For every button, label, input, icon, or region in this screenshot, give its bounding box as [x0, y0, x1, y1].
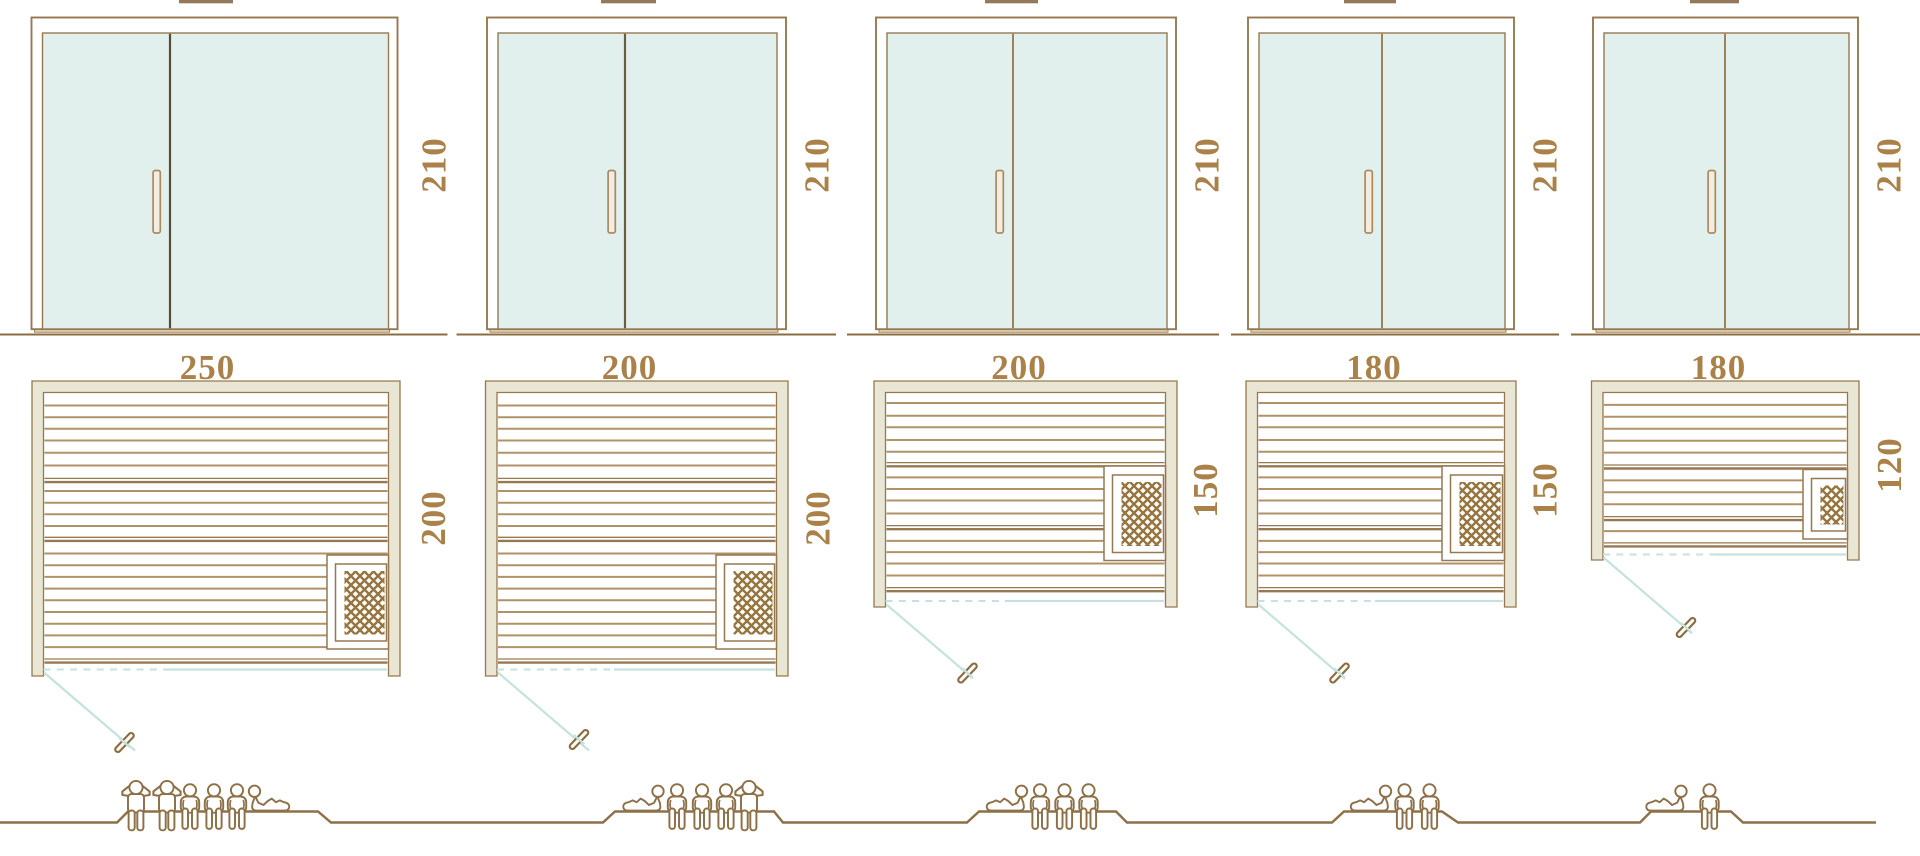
svg-text:150: 150 — [1526, 462, 1565, 518]
svg-text:150: 150 — [1186, 462, 1225, 518]
svg-text:210: 210 — [1526, 137, 1565, 193]
svg-text:210: 210 — [1188, 137, 1227, 193]
svg-text:120: 120 — [1870, 437, 1909, 493]
svg-text:200: 200 — [799, 490, 838, 546]
svg-text:200: 200 — [414, 490, 453, 546]
svg-text:210: 210 — [798, 137, 837, 193]
svg-text:210: 210 — [415, 137, 454, 193]
svg-text:210: 210 — [1870, 137, 1909, 193]
